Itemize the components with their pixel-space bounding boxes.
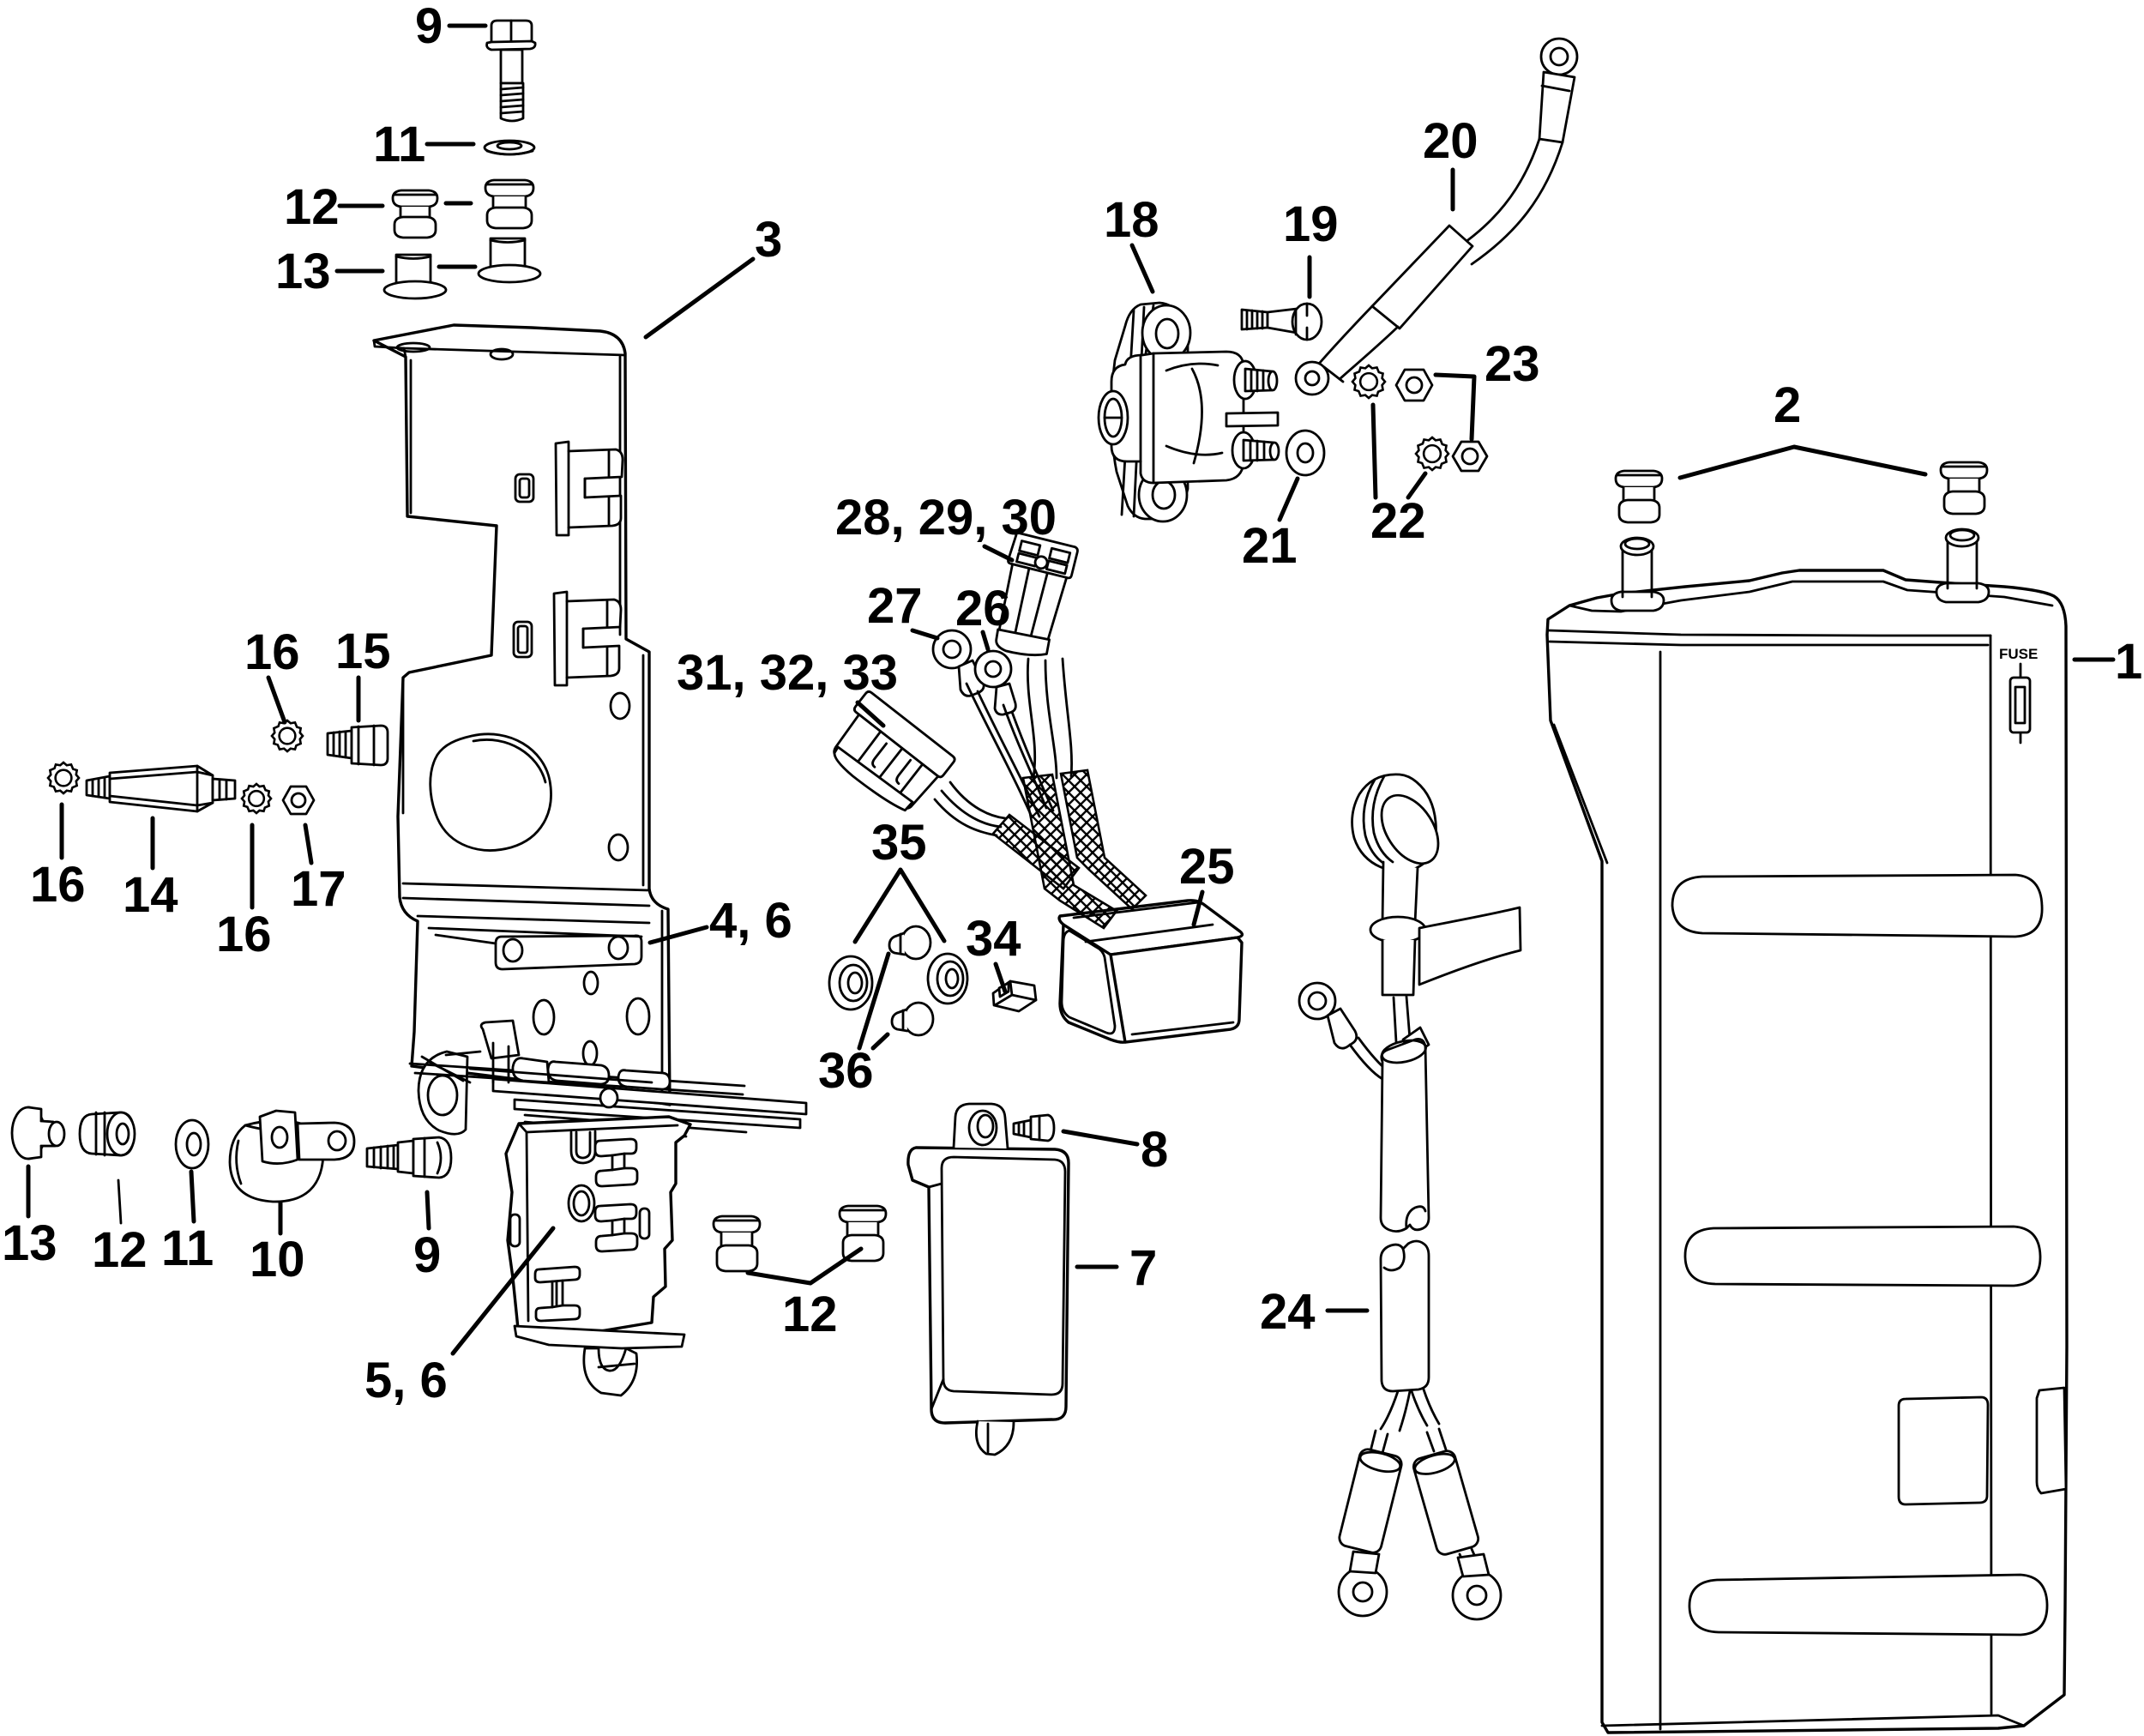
svg-text:14: 14 — [123, 867, 178, 923]
svg-text:FUSE: FUSE — [1999, 646, 2038, 662]
svg-text:15: 15 — [335, 624, 391, 679]
svg-text:21: 21 — [1242, 518, 1298, 574]
svg-text:28, 29, 30: 28, 29, 30 — [835, 490, 1057, 546]
svg-text:13: 13 — [2, 1215, 57, 1271]
svg-text:20: 20 — [1423, 113, 1479, 169]
svg-text:8: 8 — [1141, 1122, 1168, 1178]
svg-text:23: 23 — [1485, 336, 1540, 392]
svg-text:11: 11 — [161, 1221, 214, 1276]
svg-text:27: 27 — [867, 578, 923, 634]
svg-text:16: 16 — [30, 857, 86, 913]
svg-text:34: 34 — [966, 911, 1021, 967]
svg-text:13: 13 — [275, 244, 331, 299]
svg-text:25: 25 — [1179, 839, 1235, 895]
svg-text:18: 18 — [1104, 192, 1159, 248]
svg-text:12: 12 — [782, 1287, 838, 1342]
svg-text:16: 16 — [244, 624, 300, 680]
svg-text:24: 24 — [1260, 1284, 1316, 1340]
svg-text:26: 26 — [955, 581, 1011, 636]
svg-text:12: 12 — [284, 179, 340, 235]
svg-text:17: 17 — [291, 861, 346, 917]
svg-text:22: 22 — [1370, 493, 1426, 549]
svg-text:10: 10 — [250, 1232, 305, 1287]
svg-text:36: 36 — [818, 1043, 874, 1099]
svg-text:4, 6: 4, 6 — [709, 893, 792, 949]
svg-text:1: 1 — [2115, 634, 2142, 690]
svg-text:11: 11 — [373, 117, 425, 172]
svg-text:9: 9 — [415, 0, 443, 54]
svg-text:7: 7 — [1129, 1240, 1157, 1296]
svg-text:31, 32, 33: 31, 32, 33 — [677, 645, 898, 701]
svg-text:2: 2 — [1774, 377, 1801, 433]
svg-text:5, 6: 5, 6 — [364, 1353, 448, 1408]
svg-text:12: 12 — [92, 1222, 148, 1278]
svg-text:3: 3 — [755, 212, 782, 268]
svg-text:9: 9 — [413, 1227, 441, 1283]
svg-text:16: 16 — [216, 907, 272, 962]
svg-text:19: 19 — [1283, 196, 1339, 252]
svg-text:35: 35 — [871, 815, 927, 871]
